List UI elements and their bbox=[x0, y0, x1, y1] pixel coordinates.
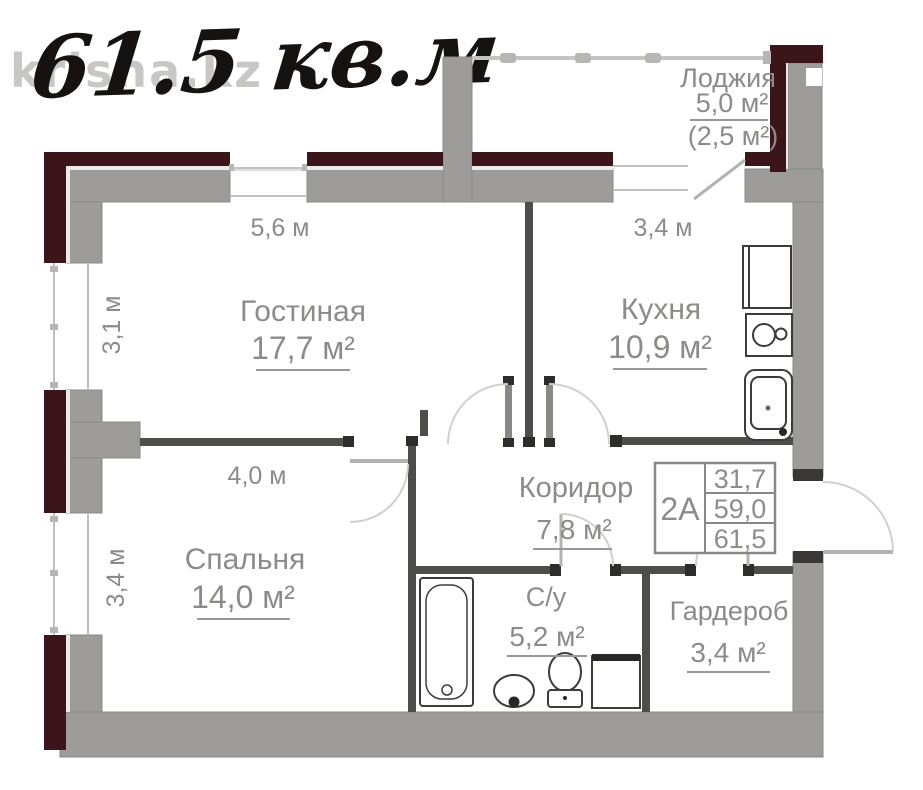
partition-bath-top bbox=[415, 566, 558, 574]
unit-info-table: 2А 31,7 59,0 61,5 bbox=[655, 463, 775, 554]
wall-right-upper bbox=[793, 202, 823, 477]
entrance-jamb bbox=[793, 469, 823, 481]
sill bbox=[66, 169, 70, 263]
wall-notch bbox=[806, 68, 822, 86]
table-value-1: 31,7 bbox=[714, 464, 767, 494]
kitchen-door-arc bbox=[549, 384, 609, 444]
wall bbox=[745, 169, 823, 202]
opening-jamb bbox=[505, 382, 512, 444]
table-value-3: 61,5 bbox=[714, 524, 767, 554]
living-door-arc bbox=[448, 384, 508, 444]
stove-icon bbox=[746, 314, 792, 356]
floor-plan-page: krisha.kz 61.5 кв.м bbox=[0, 0, 923, 790]
sill bbox=[472, 166, 613, 170]
wall-stub bbox=[66, 422, 140, 458]
room-area-living: 17,7 м² bbox=[251, 330, 355, 366]
table-value-2: 59,0 bbox=[714, 494, 767, 524]
sill bbox=[66, 166, 230, 170]
room-area-bathroom: 5,2 м² bbox=[509, 621, 584, 652]
outer-wall bbox=[44, 390, 66, 513]
outer-wall bbox=[472, 152, 613, 166]
bedroom-left-window bbox=[50, 513, 88, 635]
loggia-kitchen-window bbox=[613, 166, 688, 190]
partition-bath-wardrobe bbox=[642, 566, 650, 712]
outer-wall bbox=[44, 152, 66, 263]
living-label: Гостиная 17,7 м² bbox=[240, 295, 366, 370]
partition-living-bedroom bbox=[140, 438, 350, 446]
bathtub-icon bbox=[420, 578, 473, 706]
living-left-window bbox=[50, 263, 88, 390]
jamb-cap bbox=[544, 438, 555, 447]
dim-bedroom-width: 4,0 м bbox=[228, 462, 287, 490]
partition-bedroom-bath bbox=[408, 438, 416, 712]
corridor-label: Коридор 7,8 м² bbox=[519, 472, 634, 549]
entrance-jamb bbox=[793, 551, 823, 563]
toilet-icon bbox=[548, 653, 582, 707]
wall bbox=[66, 169, 230, 202]
jamb-cap bbox=[610, 564, 621, 576]
bedroom-door-arc bbox=[350, 464, 408, 522]
kitchen-label: Кухня 10,9 м² bbox=[608, 293, 712, 369]
room-name-bathroom: С/у bbox=[526, 582, 567, 612]
jamb-cap bbox=[610, 435, 622, 447]
room-name-kitchen: Кухня bbox=[621, 293, 701, 326]
dim-living-depth: 3,1 м bbox=[98, 296, 126, 355]
partition-stub bbox=[420, 410, 428, 436]
room-name-bedroom: Спальня bbox=[185, 543, 306, 576]
opening-jamb bbox=[546, 382, 553, 444]
loggia-label: Лоджия 5,0 м² (2,5 м²) bbox=[680, 63, 778, 151]
living-top-window bbox=[229, 164, 307, 196]
wall-shaft bbox=[443, 57, 472, 202]
outer-wall bbox=[770, 45, 823, 63]
fridge-icon bbox=[743, 246, 791, 308]
outer-wall bbox=[55, 152, 230, 166]
outer-wall bbox=[44, 635, 66, 750]
dim-kitchen-width: 3,4 м bbox=[634, 214, 693, 242]
outer-wall bbox=[307, 152, 443, 166]
room-area-corridor: 7,8 м² bbox=[536, 514, 611, 545]
wardrobe-label: Гардероб 3,4 м² bbox=[670, 596, 789, 672]
room-name-wardrobe: Гардероб bbox=[670, 596, 789, 626]
bathroom-label: С/у 5,2 м² bbox=[507, 582, 587, 656]
wall-bottom bbox=[60, 712, 823, 757]
sill bbox=[66, 390, 70, 513]
jamb-cap bbox=[685, 564, 696, 576]
sill bbox=[66, 635, 70, 712]
room-name-living: Гостиная bbox=[240, 295, 366, 328]
wash-basin-icon bbox=[494, 675, 534, 708]
sill bbox=[307, 166, 443, 170]
room-area-kitchen: 10,9 м² bbox=[608, 329, 712, 365]
partition-living-kitchen bbox=[525, 202, 533, 445]
room-area-bedroom: 14,0 м² bbox=[191, 579, 295, 615]
balcony-door-leaf bbox=[694, 160, 745, 199]
dim-bedroom-depth: 3,4 м bbox=[102, 549, 130, 608]
jamb-cap bbox=[406, 436, 418, 446]
wall bbox=[66, 202, 102, 263]
unit-label: 2А bbox=[660, 491, 700, 527]
bedroom-label: Спальня 14,0 м² bbox=[185, 543, 306, 619]
room-area2-loggia: (2,5 м²) bbox=[688, 121, 779, 151]
jamb-cap bbox=[503, 438, 514, 447]
dim-living-width: 5,6 м bbox=[251, 214, 310, 242]
room-name-corridor: Коридор bbox=[519, 472, 634, 504]
entrance-door-arc bbox=[823, 482, 893, 552]
partition-walls bbox=[140, 202, 823, 712]
jamb-cap bbox=[343, 436, 354, 447]
wall bbox=[66, 635, 102, 712]
room-area-wardrobe: 3,4 м² bbox=[690, 637, 765, 668]
room-area-loggia: 5,0 м² bbox=[696, 88, 769, 118]
outer-wall bbox=[745, 152, 770, 166]
jamb-cap bbox=[550, 564, 561, 576]
washing-machine-icon bbox=[592, 654, 640, 708]
kitchen-fixtures bbox=[743, 246, 792, 440]
floor-plan: 2А 31,7 59,0 61,5 Лоджия 5,0 м² (2,5 м²)… bbox=[0, 0, 923, 790]
jamb-cap bbox=[523, 437, 535, 447]
kitchen-sink-icon bbox=[745, 370, 792, 440]
